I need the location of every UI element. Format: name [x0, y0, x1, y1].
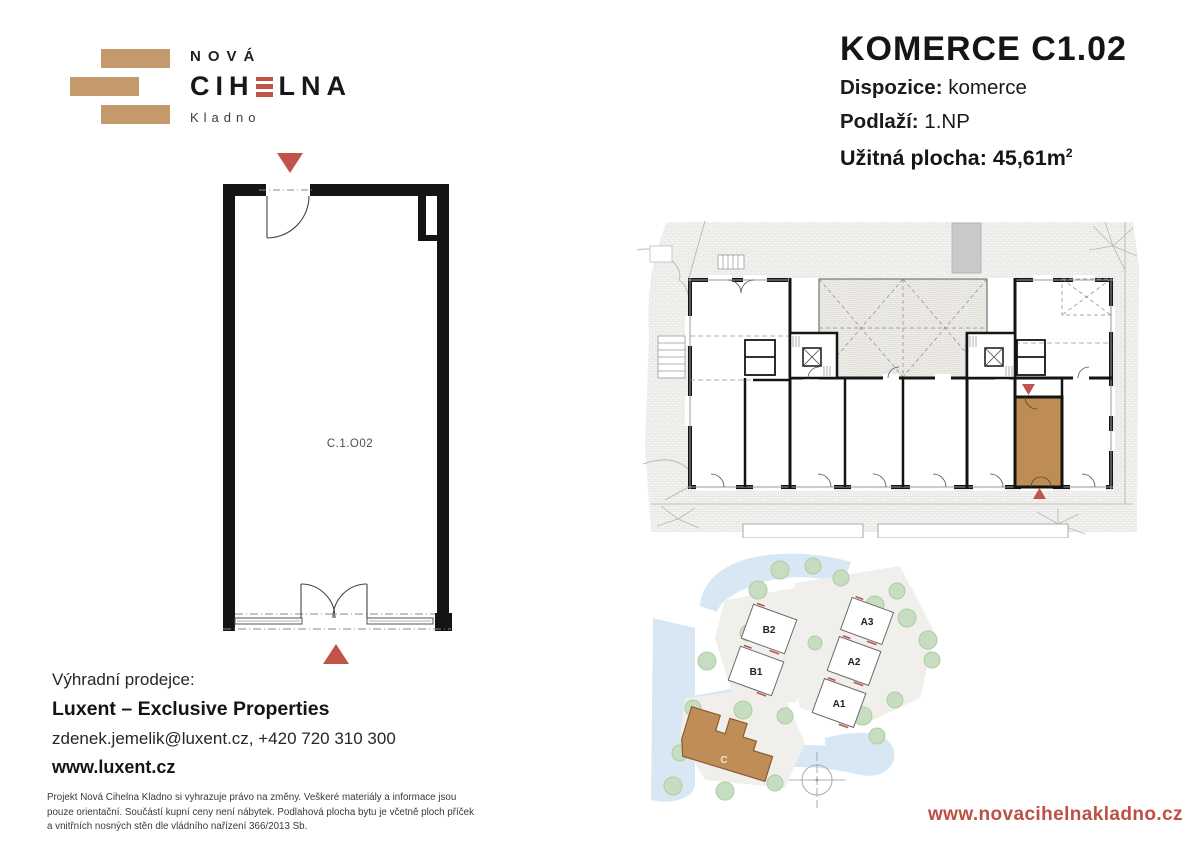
entrance-arrow-bottom-icon — [323, 644, 349, 664]
site-building-label: A2 — [848, 657, 861, 668]
area-unit: m — [1047, 146, 1066, 170]
area-exponent: 2 — [1066, 146, 1073, 160]
building-floorplan — [633, 216, 1147, 538]
area-row: Užitná plocha: 45,61m2 — [840, 146, 1180, 171]
logo-word-cihelna: CIHLNA — [190, 71, 352, 102]
logo-text: NOVÁ CIHLNA Kladno — [190, 48, 352, 125]
seller-name: Luxent – Exclusive Properties — [52, 698, 396, 721]
site-building-label: A1 — [833, 699, 846, 710]
disclaimer-text: Projekt Nová Cihelna Kladno si vyhrazuje… — [47, 791, 479, 835]
page-title: KOMERCE C1.02 — [840, 32, 1180, 66]
entrance-door-top — [259, 190, 315, 238]
dispozice-row: Dispozice: komerce — [840, 76, 1180, 100]
dispozice-value: komerce — [948, 76, 1027, 99]
podlazi-row: Podlaží: 1.NP — [840, 110, 1180, 134]
seller-contact[interactable]: zdenek.jemelik@luxent.cz, +420 720 310 3… — [52, 729, 396, 749]
entrance-arrow-top-icon — [277, 153, 303, 173]
paved-pad — [952, 223, 981, 273]
logo-word-kladno: Kladno — [190, 110, 352, 125]
site-building-label: B1 — [750, 667, 763, 678]
logo-brick-middle — [70, 77, 139, 96]
site-building-label: A3 — [861, 617, 874, 628]
podlazi-value: 1.NP — [924, 110, 970, 133]
logo-brick-top — [101, 49, 170, 68]
room-label: C.1.O02 — [327, 438, 373, 450]
logo-cihelna-post: LNA — [279, 71, 353, 102]
site-plan: B2 B1 A3 — [645, 548, 957, 810]
logo-word-nova: NOVÁ — [190, 48, 352, 65]
unit-walls — [223, 184, 452, 631]
header: KOMERCE C1.02 Dispozice: komerce Podlaží… — [840, 32, 1180, 171]
seller-heading: Výhradní prodejce: — [52, 670, 396, 690]
stair-core-right — [967, 333, 1015, 378]
logo-brick-bottom — [101, 105, 170, 124]
entrance-double-door — [301, 584, 367, 618]
site-building-c-label: C — [720, 755, 727, 766]
adjacent-structures — [743, 524, 1068, 538]
storefront-glazing — [223, 614, 451, 629]
site-building-label: B2 — [763, 625, 776, 636]
unit-floorplan: C.1.O02 — [215, 148, 455, 673]
stair-core-left — [790, 333, 837, 378]
podlazi-label: Podlaží: — [840, 110, 919, 133]
project-website-link[interactable]: www.novacihelnakladno.cz — [928, 804, 1183, 826]
seller-block: Výhradní prodejce: Luxent – Exclusive Pr… — [52, 670, 396, 778]
logo-e-bars-icon — [256, 77, 273, 97]
dispozice-label: Dispozice: — [840, 76, 943, 99]
brochure-page: NOVÁ CIHLNA Kladno KOMERCE C1.02 Dispozi… — [0, 0, 1199, 845]
highlighted-unit — [1015, 384, 1062, 499]
courtyard — [819, 279, 987, 377]
area-value: 45,61 — [993, 146, 1047, 170]
seller-website-link[interactable]: www.luxent.cz — [52, 757, 396, 778]
area-label: Užitná plocha: — [840, 146, 987, 170]
logo-cihelna-pre: CIH — [190, 71, 255, 102]
